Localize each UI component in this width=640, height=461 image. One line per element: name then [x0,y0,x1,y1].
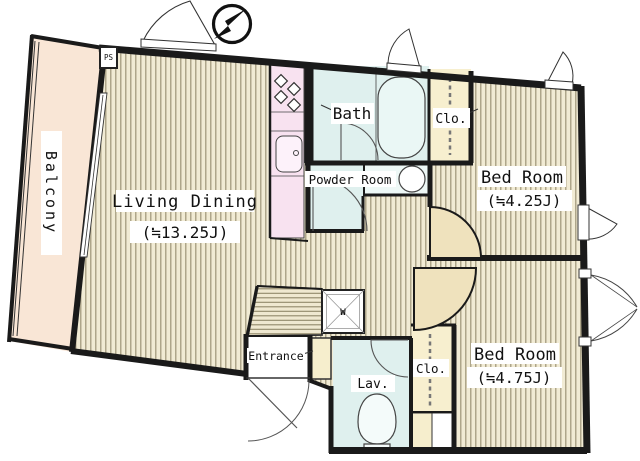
bedroom-lower-window-sill [579,269,591,278]
bedroom-lower-window-sill [579,337,591,346]
washing-machine-pad: W [322,290,364,333]
bedroom-upper-label: Bed Room [481,168,563,188]
lavatory-label: Lav. [357,377,388,392]
entrance-door-leaf [249,379,297,428]
bedroom-upper-top-window-sill [545,80,573,90]
bedroom-lower-window-leaf [591,309,637,341]
washbasin-icon [399,166,425,192]
living-top-window-swing [143,1,215,45]
floor-plan-page: W [0,0,640,461]
bedroom-upper-right-window-sill [578,205,589,240]
bedroom-lower-window-leaf [591,275,637,307]
bath-window-swing [388,29,420,68]
bedroom-upper-top-window-swing [547,52,573,84]
alcove-gap [432,413,453,451]
bedroom-lower-label: Bed Room [474,345,556,365]
bedroom-upper-right-window-swing [586,207,617,239]
powder-room-label: Powder Room [309,172,392,187]
compass-north-icon [214,6,251,43]
shoe-cabinet [311,338,331,379]
entrance-tile-step [248,286,322,336]
floor-plan-drawing: W [0,0,640,461]
pipe-shaft: PS [100,47,117,68]
bedroom-lower-size: (≒4.75J) [477,369,552,387]
entrance-door-swing [248,380,309,441]
closet-lower-label: Clo. [416,361,446,376]
balcony-label: Balcony [42,151,60,235]
living-dining-label: Living Dining [112,192,258,212]
closet-upper-label: Clo. [435,112,466,127]
bedroom-upper-size: (≒4.25J) [487,192,562,210]
bathtub-icon [378,77,425,158]
bath-label: Bath [333,104,372,123]
living-dining-size: (≒13.25J) [142,223,229,242]
closet-lower-base [412,413,432,451]
ps-label: PS [104,53,114,62]
entrance-label: Entrance [248,349,303,363]
washer-symbol: W [340,308,346,318]
